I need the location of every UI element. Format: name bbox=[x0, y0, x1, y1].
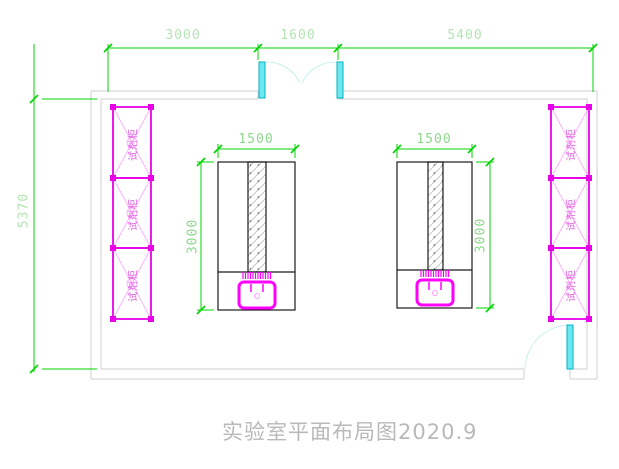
dimension-lines bbox=[30, 44, 597, 373]
door-leaf-right bbox=[337, 62, 343, 98]
reagent-cabinets-left bbox=[110, 104, 154, 322]
cad-floorplan-canvas[interactable]: 3000 1600 5400 5370 1500 3000 1500 3000 … bbox=[0, 0, 619, 469]
reagent-cabinets-right bbox=[548, 104, 592, 322]
lab-bench-right bbox=[397, 162, 472, 308]
door-swing-arc bbox=[525, 325, 570, 369]
door-swing-arcs bbox=[265, 62, 337, 83]
double-door-top bbox=[259, 62, 343, 98]
floorplan-linework bbox=[0, 0, 619, 469]
bench-service-chase bbox=[428, 162, 443, 270]
bench-service-chase bbox=[248, 162, 266, 272]
door-leaf-left bbox=[259, 62, 265, 98]
room-walls bbox=[91, 91, 597, 379]
single-door-bottom bbox=[525, 325, 573, 369]
door-leaf bbox=[567, 325, 573, 369]
lab-bench-left bbox=[218, 162, 295, 310]
